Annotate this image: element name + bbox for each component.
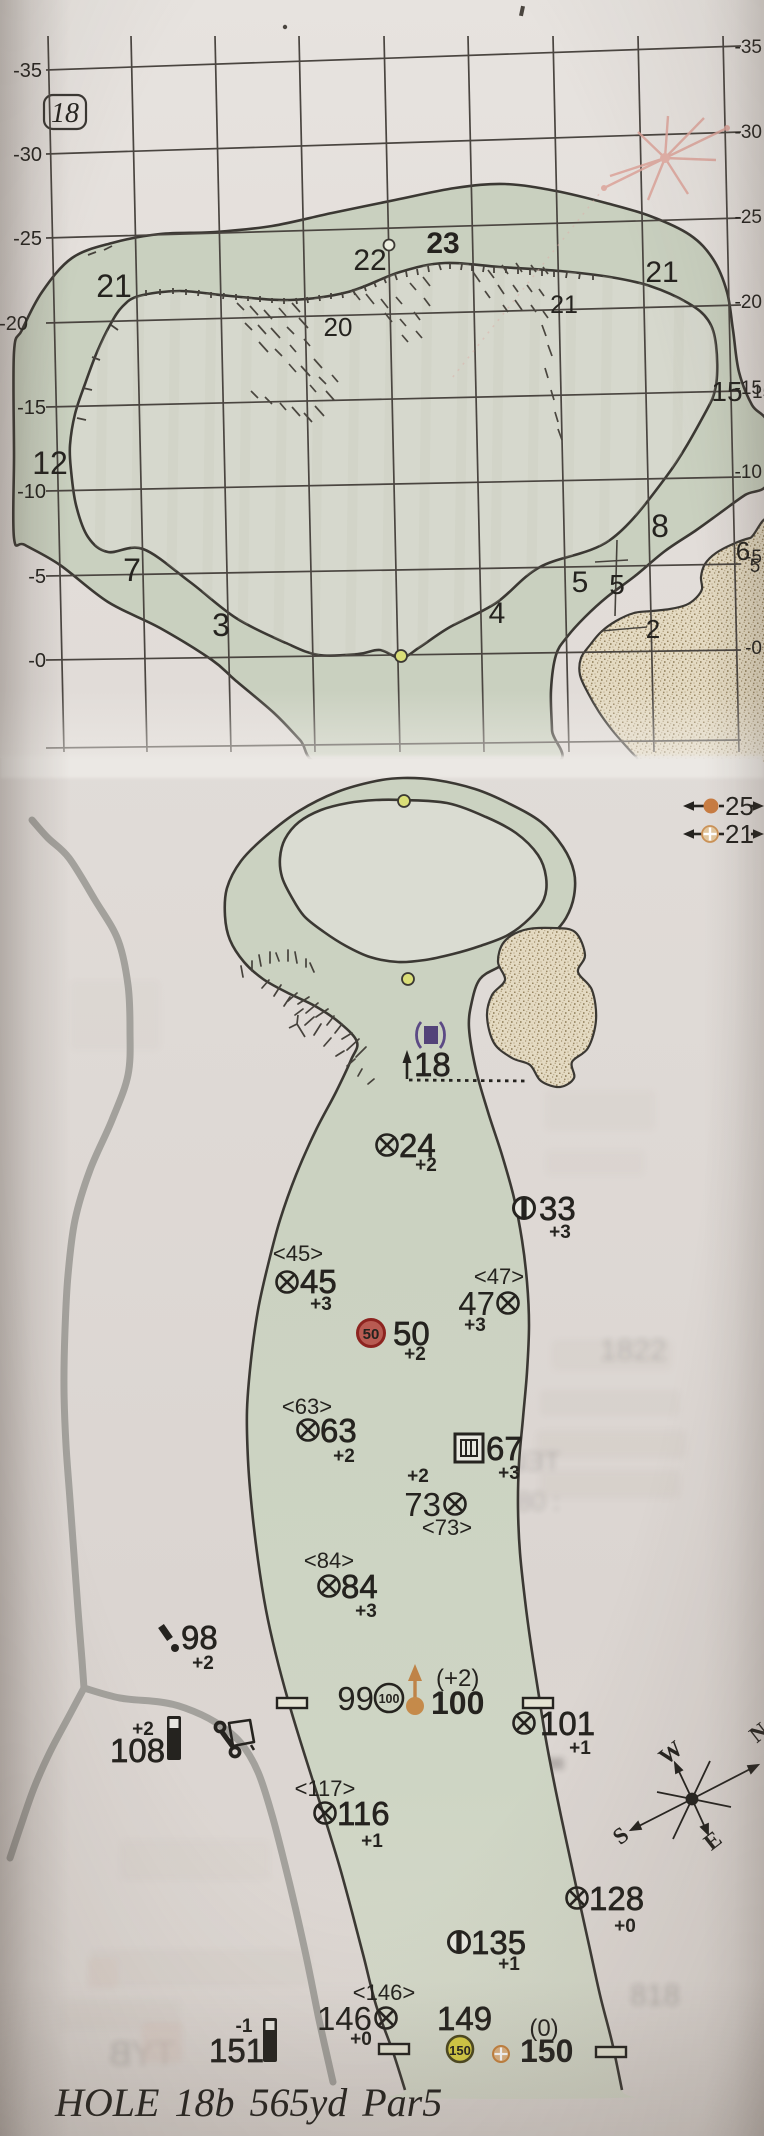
svg-text:100: 100 bbox=[379, 1692, 400, 1706]
svg-text:3: 3 bbox=[212, 607, 230, 643]
svg-text:7: 7 bbox=[123, 552, 141, 588]
svg-text:8: 8 bbox=[651, 508, 669, 544]
svg-text:+2: +2 bbox=[333, 1446, 355, 1467]
svg-text:98: 98 bbox=[181, 1619, 218, 1656]
svg-text:128: 128 bbox=[589, 1880, 644, 1917]
svg-text:21: 21 bbox=[96, 268, 132, 304]
svg-text:+3: +3 bbox=[310, 1294, 332, 1315]
svg-text:5: 5 bbox=[572, 566, 589, 599]
svg-text:116: 116 bbox=[337, 1795, 390, 1832]
svg-text:84: 84 bbox=[341, 1568, 378, 1605]
svg-text:+3: +3 bbox=[498, 1463, 520, 1484]
svg-text:50: 50 bbox=[363, 1326, 380, 1343]
svg-text:+1: +1 bbox=[361, 1831, 383, 1852]
svg-text:<73>: <73> bbox=[422, 1515, 472, 1540]
svg-text:4: 4 bbox=[489, 597, 506, 630]
svg-text:+0: +0 bbox=[614, 1916, 636, 1937]
svg-text:+3: +3 bbox=[355, 1601, 377, 1622]
svg-text:5: 5 bbox=[609, 569, 625, 600]
svg-text:63: 63 bbox=[320, 1412, 357, 1449]
svg-text:+3: +3 bbox=[464, 1315, 486, 1336]
svg-text:2: 2 bbox=[646, 614, 660, 644]
svg-text:99: 99 bbox=[337, 1680, 374, 1717]
svg-text:21: 21 bbox=[645, 256, 678, 289]
svg-text:108: 108 bbox=[110, 1732, 165, 1769]
svg-text:21: 21 bbox=[550, 291, 578, 319]
svg-text:67: 67 bbox=[486, 1430, 523, 1467]
svg-text:+1: +1 bbox=[569, 1738, 591, 1759]
svg-text:20: 20 bbox=[324, 312, 353, 342]
svg-text:+2: +2 bbox=[407, 1466, 429, 1487]
svg-text:23: 23 bbox=[426, 227, 459, 260]
svg-text:+2: +2 bbox=[192, 1653, 214, 1674]
svg-text:100: 100 bbox=[431, 1685, 484, 1721]
svg-text:18: 18 bbox=[414, 1046, 451, 1083]
svg-text:+1: +1 bbox=[498, 1954, 520, 1975]
svg-text:+2: +2 bbox=[415, 1155, 437, 1176]
svg-text:101: 101 bbox=[540, 1705, 595, 1742]
svg-text:+2: +2 bbox=[404, 1344, 426, 1365]
svg-text:+3: +3 bbox=[549, 1222, 571, 1243]
svg-text:1822: 1822 bbox=[600, 1334, 667, 1367]
svg-text:22: 22 bbox=[353, 244, 386, 277]
